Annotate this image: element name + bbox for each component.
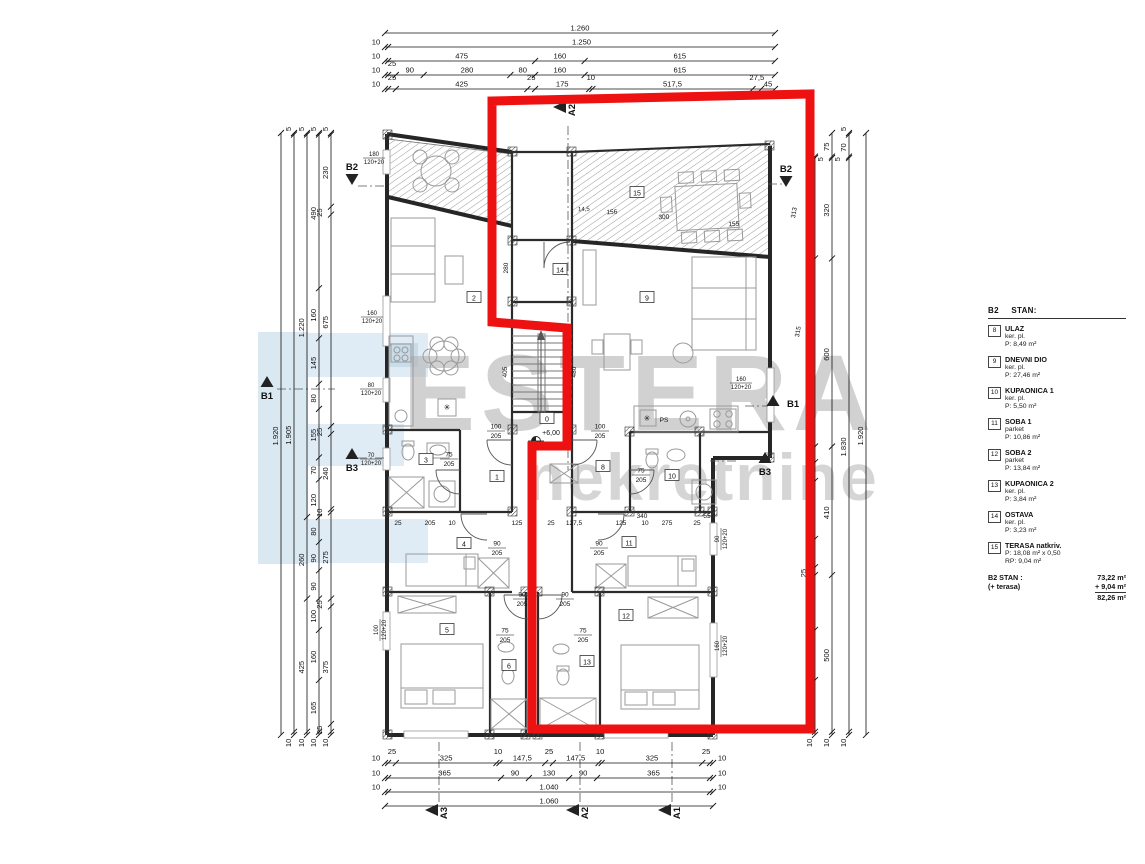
svg-text:120+20: 120+20 bbox=[731, 385, 752, 391]
svg-text:PS: PS bbox=[660, 417, 669, 424]
svg-text:175: 175 bbox=[556, 80, 569, 89]
legend-item-11: 11SOBA 1parketP: 10,86 m² bbox=[988, 417, 1126, 443]
svg-text:205: 205 bbox=[444, 461, 455, 468]
legend-item-8: 8ULAZker. pl.P: 8,49 m² bbox=[988, 324, 1126, 350]
svg-text:205: 205 bbox=[517, 601, 528, 608]
svg-text:615: 615 bbox=[673, 52, 686, 61]
svg-text:10: 10 bbox=[822, 739, 831, 747]
section-marker-b2: B2 bbox=[346, 162, 358, 173]
svg-text:160: 160 bbox=[715, 640, 721, 651]
svg-text:80: 80 bbox=[309, 527, 318, 535]
svg-text:10: 10 bbox=[372, 80, 380, 89]
svg-text:90: 90 bbox=[309, 554, 318, 562]
floor-plan-page: { "watermark": { "line1": "ESTERA", "lin… bbox=[0, 0, 1145, 859]
svg-text:25: 25 bbox=[388, 73, 396, 82]
room-number-13: 13 bbox=[583, 660, 591, 667]
svg-text:100: 100 bbox=[374, 624, 380, 635]
svg-text:500: 500 bbox=[822, 649, 831, 662]
svg-text:120+20: 120+20 bbox=[723, 528, 729, 549]
svg-text:160: 160 bbox=[554, 66, 567, 75]
svg-text:205: 205 bbox=[500, 637, 511, 644]
totals-sum: 82,26 m² bbox=[1097, 593, 1126, 602]
legend-item-floor: ker. pl. bbox=[1005, 488, 1054, 496]
svg-text:260: 260 bbox=[297, 553, 306, 566]
svg-text:25: 25 bbox=[315, 208, 324, 216]
svg-text:25: 25 bbox=[702, 747, 710, 756]
svg-text:325: 325 bbox=[646, 754, 659, 763]
svg-text:90: 90 bbox=[579, 769, 587, 778]
room-number-9: 9 bbox=[645, 296, 649, 303]
svg-text:120+20: 120+20 bbox=[361, 391, 382, 397]
legend-item-number: 12 bbox=[988, 449, 1001, 461]
section-marker-a3: A3 bbox=[439, 807, 450, 819]
svg-text:25: 25 bbox=[315, 600, 324, 608]
svg-text:405: 405 bbox=[502, 366, 509, 377]
legend-item-floor: ker. pl. bbox=[1005, 395, 1054, 403]
svg-text:75: 75 bbox=[579, 628, 587, 635]
totals-value: 73,22 m² bbox=[1097, 573, 1126, 582]
legend-item-name: SOBA 2 bbox=[1005, 448, 1040, 457]
svg-text:90: 90 bbox=[561, 592, 569, 599]
svg-text:130: 130 bbox=[543, 769, 556, 778]
legend-item-area: P: 3,84 m² bbox=[1005, 496, 1054, 504]
svg-text:145: 145 bbox=[309, 357, 318, 370]
svg-text:205: 205 bbox=[425, 520, 436, 527]
room-number-11: 11 bbox=[625, 541, 632, 548]
legend: B2 STAN: 8ULAZker. pl.P: 8,49 m²9DNEVNI … bbox=[988, 306, 1126, 602]
svg-text:160: 160 bbox=[309, 651, 318, 664]
svg-text:10: 10 bbox=[372, 783, 380, 792]
svg-text:80: 80 bbox=[368, 383, 375, 389]
svg-text:615: 615 bbox=[673, 66, 686, 75]
svg-text:280: 280 bbox=[461, 66, 474, 75]
legend-item-number: 11 bbox=[988, 418, 1001, 430]
floor-plan-canvas: ESTERA nekretnine bbox=[0, 0, 1145, 859]
legend-item-12: 12SOBA 2parketP: 13,84 m² bbox=[988, 448, 1126, 474]
room-number-6: 6 bbox=[507, 664, 511, 671]
room-number-12: 12 bbox=[622, 614, 630, 621]
svg-text:25: 25 bbox=[693, 520, 701, 527]
section-marker-b3: B3 bbox=[759, 467, 771, 478]
svg-text:10: 10 bbox=[297, 739, 306, 747]
svg-text:313: 313 bbox=[790, 206, 799, 218]
svg-text:160: 160 bbox=[554, 52, 567, 61]
svg-text:100: 100 bbox=[595, 424, 606, 431]
svg-text:365: 365 bbox=[647, 769, 660, 778]
svg-text:156: 156 bbox=[606, 209, 618, 217]
svg-text:1.920: 1.920 bbox=[856, 426, 865, 445]
legend-item-name: KUPAONICA 1 bbox=[1005, 386, 1054, 395]
svg-text:10: 10 bbox=[641, 520, 649, 527]
svg-text:230: 230 bbox=[321, 166, 330, 179]
totals-plus-value: + 9,04 m² bbox=[1095, 582, 1126, 593]
legend-item-area: P: 18,08 m² x 0,50 bbox=[1005, 550, 1061, 558]
svg-text:75: 75 bbox=[637, 468, 645, 475]
svg-text:14,5: 14,5 bbox=[578, 207, 591, 214]
svg-text:5: 5 bbox=[321, 127, 330, 131]
svg-text:27,5: 27,5 bbox=[749, 73, 764, 82]
legend-totals: B2 STAN : 73,22 m² (+ terasa) + 9,04 m² … bbox=[988, 573, 1126, 602]
svg-text:425: 425 bbox=[455, 80, 468, 89]
totals-plus-label: (+ terasa) bbox=[988, 582, 1020, 593]
svg-text:375: 375 bbox=[321, 661, 330, 674]
totals-label: B2 STAN : bbox=[988, 573, 1023, 582]
svg-text:365: 365 bbox=[438, 769, 451, 778]
svg-text:10: 10 bbox=[805, 739, 814, 747]
svg-text:1.040: 1.040 bbox=[540, 783, 559, 792]
svg-text:25: 25 bbox=[394, 520, 402, 527]
svg-text:10: 10 bbox=[587, 73, 595, 82]
svg-text:120+20: 120+20 bbox=[723, 635, 729, 656]
legend-item-floor: ker. pl. bbox=[1005, 333, 1036, 341]
room-number-8: 8 bbox=[601, 465, 605, 472]
svg-text:10: 10 bbox=[372, 52, 380, 61]
svg-text:205: 205 bbox=[595, 433, 606, 440]
svg-text:127,5: 127,5 bbox=[566, 520, 583, 527]
legend-item-floor: ker. pl. bbox=[1005, 519, 1036, 527]
svg-text:25: 25 bbox=[315, 428, 324, 436]
svg-text:75: 75 bbox=[501, 628, 509, 635]
svg-text:90: 90 bbox=[595, 541, 603, 548]
svg-text:10: 10 bbox=[372, 769, 380, 778]
svg-text:1.260: 1.260 bbox=[570, 24, 589, 33]
svg-text:10: 10 bbox=[372, 754, 380, 763]
svg-text:80: 80 bbox=[519, 66, 527, 75]
section-marker-b3: B3 bbox=[346, 463, 358, 474]
svg-text:600: 600 bbox=[822, 348, 831, 361]
legend-item-14: 14OSTAVAker. pl.P: 3,23 m² bbox=[988, 510, 1126, 536]
svg-text:80: 80 bbox=[309, 394, 318, 402]
svg-text:1.250: 1.250 bbox=[572, 38, 591, 47]
svg-text:10: 10 bbox=[839, 739, 848, 747]
legend-header-code: B2 bbox=[988, 306, 999, 315]
svg-text:205: 205 bbox=[636, 477, 647, 484]
svg-text:205: 205 bbox=[560, 601, 571, 608]
legend-header: B2 STAN: bbox=[988, 306, 1126, 319]
svg-text:90: 90 bbox=[511, 769, 519, 778]
svg-text:+6,00: +6,00 bbox=[542, 430, 560, 437]
svg-text:10: 10 bbox=[372, 38, 380, 47]
svg-text:160: 160 bbox=[367, 311, 378, 317]
svg-text:70: 70 bbox=[309, 466, 318, 474]
room-number-14: 14 bbox=[556, 268, 564, 275]
legend-item-number: 14 bbox=[988, 511, 1001, 523]
legend-item-area: P: 27,46 m² bbox=[1005, 372, 1047, 380]
svg-text:1.905: 1.905 bbox=[284, 426, 293, 445]
legend-item-name: KUPAONICA 2 bbox=[1005, 479, 1054, 488]
svg-text:10: 10 bbox=[448, 520, 456, 527]
legend-item-area: P: 13,84 m² bbox=[1005, 465, 1040, 473]
svg-text:320: 320 bbox=[822, 204, 831, 217]
svg-text:5: 5 bbox=[297, 127, 306, 131]
svg-text:90: 90 bbox=[309, 582, 318, 590]
svg-text:205: 205 bbox=[594, 550, 605, 557]
svg-text:205: 205 bbox=[492, 550, 503, 557]
svg-text:475: 475 bbox=[455, 52, 468, 61]
svg-text:1.920: 1.920 bbox=[271, 426, 280, 445]
svg-text:75: 75 bbox=[822, 143, 831, 151]
svg-text:5: 5 bbox=[839, 127, 848, 131]
legend-item-10: 10KUPAONICA 1ker. pl.P: 5,50 m² bbox=[988, 386, 1126, 412]
svg-text:10: 10 bbox=[372, 66, 380, 75]
svg-text:1.220: 1.220 bbox=[297, 318, 306, 337]
legend-item-name: ULAZ bbox=[1005, 324, 1036, 333]
svg-text:✳: ✳ bbox=[644, 414, 651, 423]
room-number-4: 4 bbox=[462, 542, 466, 549]
room-number-3: 3 bbox=[424, 458, 428, 465]
legend-item-9: 9DNEVNI DIOker. pl.P: 27,46 m² bbox=[988, 355, 1126, 381]
svg-text:90: 90 bbox=[518, 592, 526, 599]
svg-text:517,5: 517,5 bbox=[663, 80, 682, 89]
svg-text:10: 10 bbox=[718, 754, 726, 763]
room-number-2: 2 bbox=[472, 296, 476, 303]
svg-text:180: 180 bbox=[369, 152, 380, 158]
svg-text:25: 25 bbox=[388, 747, 396, 756]
svg-text:90: 90 bbox=[493, 541, 501, 548]
svg-text:480: 480 bbox=[571, 366, 578, 377]
svg-text:300: 300 bbox=[658, 214, 670, 222]
room-number-5: 5 bbox=[445, 628, 449, 635]
svg-text:240: 240 bbox=[321, 467, 330, 480]
svg-text:275: 275 bbox=[662, 520, 673, 527]
svg-text:5: 5 bbox=[309, 127, 318, 131]
legend-item-number: 13 bbox=[988, 480, 1001, 492]
svg-text:160: 160 bbox=[309, 309, 318, 322]
legend-item-name: TERASA natkriv. bbox=[1005, 541, 1061, 550]
svg-text:10: 10 bbox=[718, 783, 726, 792]
svg-text:1.060: 1.060 bbox=[540, 797, 559, 806]
svg-text:147,5: 147,5 bbox=[566, 754, 585, 763]
section-marker-a2: A2 bbox=[567, 104, 578, 116]
section-marker-b2: B2 bbox=[780, 164, 792, 175]
svg-text:55: 55 bbox=[703, 513, 711, 520]
legend-items: 8ULAZker. pl.P: 8,49 m²9DNEVNI DIOker. p… bbox=[988, 324, 1126, 567]
svg-text:125: 125 bbox=[512, 520, 523, 527]
svg-text:280: 280 bbox=[503, 262, 510, 273]
legend-item-name: OSTAVA bbox=[1005, 510, 1036, 519]
svg-text:205: 205 bbox=[578, 637, 589, 644]
svg-text:125: 125 bbox=[616, 520, 627, 527]
svg-text:25: 25 bbox=[315, 726, 324, 734]
svg-text:10: 10 bbox=[315, 509, 324, 517]
svg-text:10: 10 bbox=[309, 739, 318, 747]
svg-text:90: 90 bbox=[406, 66, 414, 75]
legend-item-number: 9 bbox=[988, 356, 1001, 368]
room-number-1: 1 bbox=[495, 475, 499, 482]
svg-text:325: 325 bbox=[440, 754, 453, 763]
legend-item-floor: parket bbox=[1005, 426, 1040, 434]
svg-text:160: 160 bbox=[736, 377, 747, 383]
legend-item-13: 13KUPAONICA 2ker. pl.P: 3,84 m² bbox=[988, 479, 1126, 505]
svg-text:45: 45 bbox=[764, 80, 772, 89]
room-number-0: 0 bbox=[545, 417, 549, 424]
svg-text:90: 90 bbox=[715, 535, 721, 542]
legend-item-area2: RP: 9,04 m² bbox=[1005, 558, 1061, 566]
legend-item-floor: ker. pl. bbox=[1005, 364, 1047, 372]
svg-text:120+20: 120+20 bbox=[382, 619, 388, 640]
section-marker-b1: B1 bbox=[787, 399, 800, 410]
legend-item-15: 15TERASA natkriv.P: 18,08 m² x 0,50RP: 9… bbox=[988, 541, 1126, 567]
svg-text:10: 10 bbox=[321, 739, 330, 747]
room-number-10: 10 bbox=[668, 474, 676, 481]
svg-text:410: 410 bbox=[822, 506, 831, 519]
section-marker-b1: B1 bbox=[261, 391, 274, 402]
svg-text:275: 275 bbox=[321, 551, 330, 564]
svg-text:120+20: 120+20 bbox=[361, 461, 382, 467]
svg-text:70: 70 bbox=[839, 143, 848, 151]
svg-text:147,5: 147,5 bbox=[513, 754, 532, 763]
svg-text:100: 100 bbox=[491, 424, 502, 431]
section-marker-a2: A2 bbox=[580, 807, 591, 819]
legend-header-label: STAN: bbox=[1011, 306, 1036, 315]
svg-text:675: 675 bbox=[321, 316, 330, 329]
svg-text:5: 5 bbox=[284, 127, 293, 131]
svg-text:340: 340 bbox=[637, 513, 648, 520]
legend-item-area: P: 10,86 m² bbox=[1005, 434, 1040, 442]
svg-text:10: 10 bbox=[284, 739, 293, 747]
svg-text:165: 165 bbox=[309, 702, 318, 715]
svg-text:155: 155 bbox=[728, 221, 740, 229]
svg-text:25: 25 bbox=[545, 747, 553, 756]
svg-text:25: 25 bbox=[527, 73, 535, 82]
svg-text:✳: ✳ bbox=[444, 403, 451, 412]
legend-item-number: 15 bbox=[988, 542, 1001, 554]
svg-text:120: 120 bbox=[309, 494, 318, 507]
legend-item-area: P: 8,49 m² bbox=[1005, 341, 1036, 349]
svg-text:25: 25 bbox=[547, 520, 555, 527]
svg-text:205: 205 bbox=[491, 433, 502, 440]
svg-text:10: 10 bbox=[494, 747, 502, 756]
legend-item-number: 8 bbox=[988, 325, 1001, 337]
svg-text:10: 10 bbox=[596, 747, 604, 756]
legend-item-name: SOBA 1 bbox=[1005, 417, 1040, 426]
legend-item-area: P: 5,50 m² bbox=[1005, 403, 1054, 411]
legend-item-floor: parket bbox=[1005, 457, 1040, 465]
svg-text:120+20: 120+20 bbox=[364, 160, 385, 166]
svg-text:25: 25 bbox=[388, 59, 396, 68]
svg-text:70: 70 bbox=[368, 453, 375, 459]
legend-item-area: P: 3,23 m² bbox=[1005, 527, 1036, 535]
svg-text:75: 75 bbox=[445, 452, 453, 459]
room-number-15: 15 bbox=[633, 191, 641, 198]
legend-item-name: DNEVNI DIO bbox=[1005, 355, 1047, 364]
svg-text:100: 100 bbox=[309, 610, 318, 623]
svg-text:10: 10 bbox=[718, 769, 726, 778]
section-marker-a1: A1 bbox=[672, 806, 683, 819]
svg-text:1.830: 1.830 bbox=[839, 437, 848, 456]
legend-item-number: 10 bbox=[988, 387, 1001, 399]
svg-text:5: 5 bbox=[833, 157, 842, 161]
svg-text:5: 5 bbox=[816, 157, 825, 161]
svg-text:120+20: 120+20 bbox=[362, 319, 383, 325]
svg-text:425: 425 bbox=[297, 661, 306, 674]
